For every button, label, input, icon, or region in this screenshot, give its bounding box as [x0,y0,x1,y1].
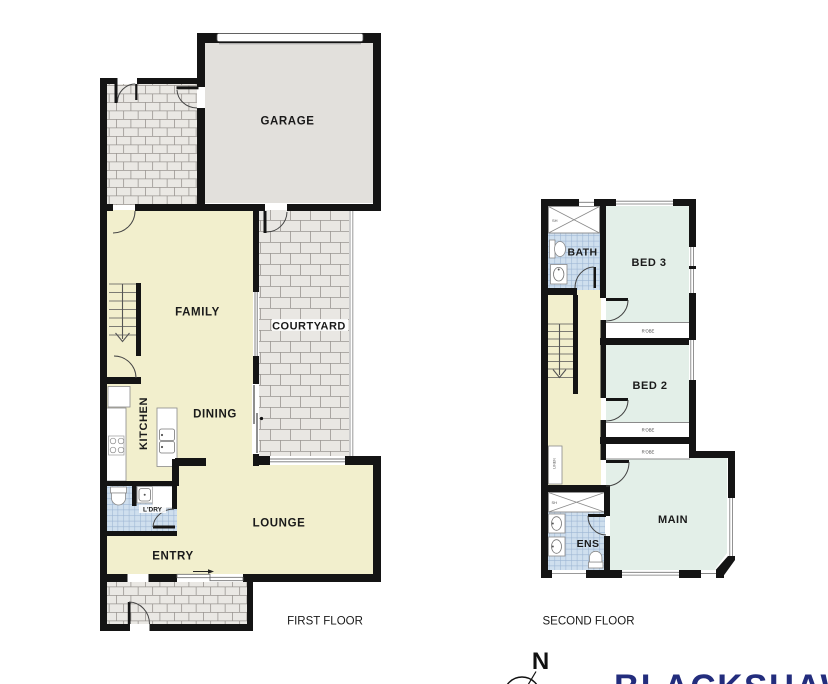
svg-text:R'OBE: R'OBE [642,450,655,455]
svg-text:BED 3: BED 3 [632,257,667,269]
svg-text:FAMILY: FAMILY [175,307,220,319]
svg-text:R'OBE: R'OBE [642,329,655,334]
svg-text:GARAGE: GARAGE [260,116,314,128]
svg-text:SH: SH [552,218,558,223]
svg-text:BED 2: BED 2 [633,380,668,392]
svg-text:LINEN: LINEN [553,458,557,469]
svg-text:SH: SH [552,500,558,505]
svg-text:DINING: DINING [193,409,237,421]
svg-text:ENTRY: ENTRY [152,551,194,563]
svg-text:FIRST FLOOR: FIRST FLOOR [287,616,363,628]
svg-text:L'DRY: L'DRY [143,507,163,514]
svg-text:LOUNGE: LOUNGE [253,518,306,530]
svg-text:N: N [532,648,549,675]
svg-text:MAIN: MAIN [658,514,688,526]
svg-text:SECOND FLOOR: SECOND FLOOR [542,616,634,628]
svg-text:BLACKSHAW: BLACKSHAW [614,668,828,684]
svg-text:BATH: BATH [568,247,598,259]
svg-text:R'OBE: R'OBE [642,428,655,433]
svg-text:ENS: ENS [577,538,600,550]
svg-text:KITCHEN: KITCHEN [138,397,150,450]
svg-text:COURTYARD: COURTYARD [272,321,346,333]
